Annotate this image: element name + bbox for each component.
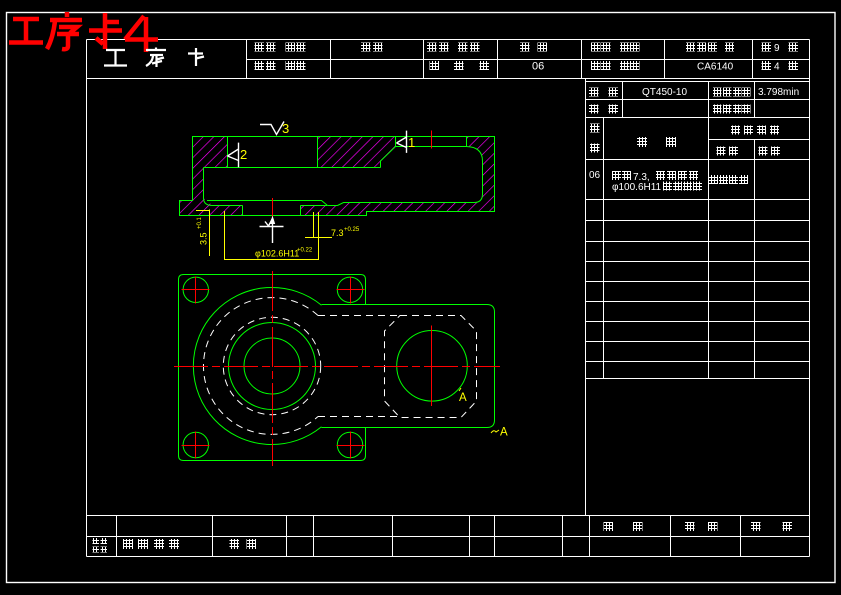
svg-text:A: A (459, 392, 467, 404)
svg-text:CA6140: CA6140 (697, 62, 734, 73)
svg-text:1: 1 (408, 135, 415, 150)
svg-text:+0.1: +0.1 (197, 216, 203, 229)
svg-text:9: 9 (774, 43, 780, 54)
svg-text:3.798min: 3.798min (758, 87, 799, 98)
svg-text:A: A (500, 427, 508, 439)
svg-text:φ102.6H11: φ102.6H11 (255, 249, 299, 259)
svg-text:3: 3 (282, 121, 289, 136)
svg-text:4: 4 (774, 62, 780, 73)
svg-text:06: 06 (532, 61, 544, 73)
svg-text:+0.22: +0.22 (297, 248, 313, 254)
svg-text:3.5: 3.5 (199, 232, 209, 245)
svg-text:+0.25: +0.25 (344, 227, 360, 233)
svg-text:2: 2 (240, 147, 247, 162)
svg-text:φ100.6H11: φ100.6H11 (612, 182, 662, 193)
svg-text:06: 06 (589, 170, 601, 181)
svg-text:7.3: 7.3 (331, 228, 344, 238)
svg-text:QT450-10: QT450-10 (642, 87, 687, 98)
